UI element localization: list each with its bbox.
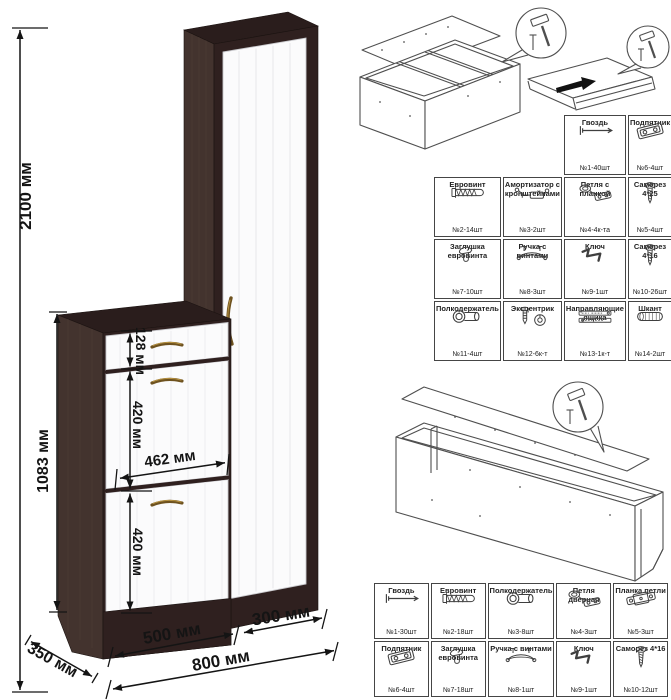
hinge-icon xyxy=(564,587,604,610)
table-spacer xyxy=(503,115,562,175)
euroscrew-icon xyxy=(447,181,487,204)
screw-icon xyxy=(630,181,670,204)
dowel-icon xyxy=(630,305,670,328)
part-count: №1-30шт xyxy=(386,629,416,636)
hinge-icon xyxy=(575,181,615,204)
part-count: №12-6к-т xyxy=(517,351,547,358)
part-count: №9-1шт xyxy=(582,289,608,296)
furniture-illustration xyxy=(0,0,360,700)
part-count: №4-4к-та xyxy=(580,227,610,234)
part-cell-cap: Заглушка евровинта №7-10шт xyxy=(434,239,501,299)
diagram-back-panel-column xyxy=(396,382,663,581)
part-cell-euroscrew: Евровинт №2-14шт xyxy=(434,177,501,237)
part-cell-slides: Направляющие ящика №13-1к-т xyxy=(564,301,626,361)
hex-key-icon xyxy=(575,243,615,266)
part-cell-door-hinge: Петля дверная №4-3шт xyxy=(556,583,611,639)
part-count: №8-3шт xyxy=(519,289,545,296)
part-cell-gas-strut: Амортизатор с кронштейнами №3-2шт xyxy=(503,177,562,237)
part-cell-glide: Подпятник №6-4шт xyxy=(628,115,671,175)
cam-icon xyxy=(512,305,552,328)
parts-table-upper: Гвоздь №1-40шт Подпятник №6-4шт Евровинт… xyxy=(434,115,667,361)
cap-icon xyxy=(447,243,487,266)
part-cell-handle: Ручка с винтами №8-1шт xyxy=(488,641,555,697)
part-cell-screw-4x25: Саморез 4*25 №5-4шт xyxy=(628,177,671,237)
part-count: №10-12шт xyxy=(623,687,657,694)
part-cell-nail: Гвоздь №1-30шт xyxy=(374,583,429,639)
parts-table-lower: Гвоздь №1-30шт Евровинт №2-18шт Полкодер… xyxy=(374,583,668,697)
nail-icon xyxy=(575,119,615,142)
part-count: №13-1к-т xyxy=(580,351,610,358)
cap-icon xyxy=(438,645,478,668)
part-count: №3-2шт xyxy=(519,227,545,234)
part-count: №14-2шт xyxy=(635,351,665,358)
dim-label-total-height: 2100 мм xyxy=(16,162,36,230)
dim-total-height-arrow xyxy=(12,28,48,692)
shelf-pin-icon xyxy=(447,305,487,328)
nail-icon xyxy=(381,587,421,610)
handle-icon xyxy=(501,645,541,668)
part-cell-dowel: Шкант №14-2шт xyxy=(628,301,671,361)
shelf-pin-icon xyxy=(501,587,541,610)
part-cell-shelf-pin: Полкодержатель №11-4шт xyxy=(434,301,501,361)
part-count: №7-18шт xyxy=(443,687,473,694)
part-cell-cam: Эксцентрик №12-6к-т xyxy=(503,301,562,361)
part-count: №11-4шт xyxy=(453,351,483,358)
part-cell-hex-key: Ключ №9-1шт xyxy=(564,239,626,299)
part-cell-handle: Ручка с винтами №8-3шт xyxy=(503,239,562,299)
gas-strut-icon xyxy=(512,181,552,204)
part-count: №5-3шт xyxy=(627,629,653,636)
part-count: №3-8шт xyxy=(508,629,534,636)
part-cell-glide: Подпятник №6-4шт xyxy=(374,641,429,697)
dim-label-flap1-height: 420 мм xyxy=(130,401,146,449)
part-count: №1-40шт xyxy=(580,165,610,172)
wardrobe-door xyxy=(223,38,306,600)
hex-key-icon xyxy=(564,645,604,668)
part-count: №6-4шт xyxy=(637,165,663,172)
part-cell-nail: Гвоздь №1-40шт xyxy=(564,115,626,175)
dim-label-lower-height: 1083 мм xyxy=(35,429,53,493)
part-count: №5-4шт xyxy=(637,227,663,234)
part-cell-shelf-pin: Полкодержатель №3-8шт xyxy=(488,583,555,639)
dim-label-flap2-height: 420 мм xyxy=(130,528,146,576)
part-count: №2-14шт xyxy=(452,227,482,234)
screw-icon xyxy=(630,243,670,266)
part-cell-hex-key: Ключ №9-1шт xyxy=(556,641,611,697)
part-count: №10-26шт xyxy=(633,289,667,296)
part-cell-euroscrew: Евровинт №2-18шт xyxy=(431,583,486,639)
glide-icon xyxy=(381,645,421,668)
handle-icon xyxy=(512,243,552,266)
part-cell-cap: Заглушка евровинта №7-18шт xyxy=(431,641,486,697)
part-cell-screw-4x16: Саморез 4*16 №10-26шт xyxy=(628,239,671,299)
slides-icon xyxy=(575,305,615,328)
part-count: №6-4шт xyxy=(388,687,414,694)
part-cell-hinge-plate: Планка петли №5-3шт xyxy=(613,583,668,639)
dim-label-drawer-height: 128 мм xyxy=(133,327,149,375)
part-count: №2-18шт xyxy=(443,629,473,636)
part-count: №7-10шт xyxy=(452,289,482,296)
part-count: №9-1шт xyxy=(571,687,597,694)
euroscrew-icon xyxy=(438,587,478,610)
glide-icon xyxy=(630,119,670,142)
part-cell-screw-4x16: Саморез 4*16 №10-12шт xyxy=(613,641,668,697)
hammer-callout xyxy=(502,8,566,62)
furniture-assembly-sheet: 2100 мм 1083 мм 128 мм 420 мм 462 мм 420… xyxy=(0,0,671,700)
part-count: №8-1шт xyxy=(508,687,534,694)
table-spacer xyxy=(434,115,501,175)
hinge-plate-icon xyxy=(621,587,661,610)
screw-icon xyxy=(621,645,661,668)
flap-door-2 xyxy=(106,480,228,613)
part-count: №4-3шт xyxy=(571,629,597,636)
part-cell-hinge: Петля с планкой №4-4к-та xyxy=(564,177,626,237)
